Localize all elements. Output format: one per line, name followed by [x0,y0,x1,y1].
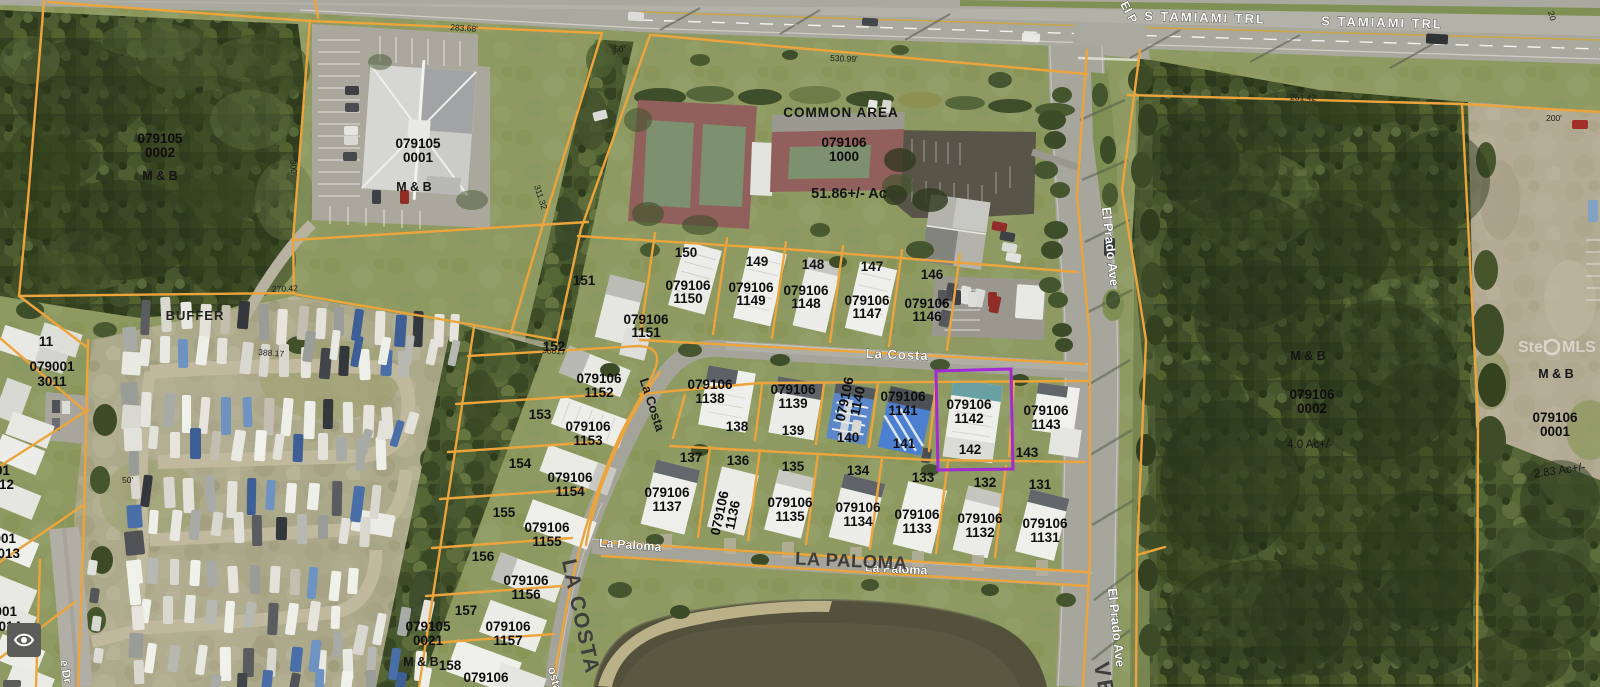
svg-text:530.99': 530.99' [830,53,858,64]
svg-text:079106: 079106 [1023,403,1069,418]
svg-text:079105: 079105 [395,136,441,151]
svg-text:M & B: M & B [1290,349,1325,363]
svg-text:079106: 079106 [821,135,867,150]
svg-text:1150: 1150 [673,291,702,306]
svg-text:142: 142 [959,442,982,457]
svg-text:079106: 079106 [767,495,813,510]
svg-text:M & B: M & B [1538,367,1573,381]
svg-text:079106: 079106 [485,619,531,634]
svg-text:079106: 079106 [565,419,611,434]
svg-text:135: 135 [782,459,805,474]
svg-text:1153: 1153 [573,433,603,448]
svg-text:COMMON AREA: COMMON AREA [783,105,899,120]
svg-text:079105: 079105 [137,131,183,146]
svg-text:151: 151 [573,273,596,288]
svg-text:079106: 079106 [1532,410,1578,425]
svg-text:132: 132 [974,475,997,490]
svg-text:079106: 079106 [547,470,593,485]
svg-text:1151: 1151 [631,325,661,340]
svg-text:BUFFER: BUFFER [166,308,225,323]
svg-text:138: 138 [726,419,749,434]
svg-text:137: 137 [680,450,703,465]
svg-text:1135: 1135 [775,509,805,524]
svg-text:147: 147 [861,259,884,274]
svg-text:136: 136 [727,453,750,468]
svg-text:149: 149 [746,254,769,269]
svg-text:146: 146 [921,267,944,282]
svg-text:140: 140 [837,430,860,445]
svg-text:079106: 079106 [687,377,733,392]
svg-text:155: 155 [493,505,516,520]
svg-text:0001: 0001 [1540,424,1571,439]
svg-text:261.42': 261.42' [1290,92,1318,103]
svg-text:1141: 1141 [888,403,918,418]
svg-text:079106: 079106 [576,371,622,386]
svg-text:01: 01 [0,463,10,478]
svg-text:001: 001 [0,531,16,546]
svg-text:079001: 079001 [29,359,75,374]
svg-text:La Costa: La Costa [865,346,928,363]
svg-text:079106: 079106 [894,507,940,522]
svg-text:150: 150 [675,245,698,260]
svg-text:1147: 1147 [852,306,881,321]
svg-text:1138: 1138 [695,391,725,406]
svg-text:079106: 079106 [957,511,1003,526]
svg-text:141: 141 [893,436,916,451]
svg-text:0002: 0002 [145,145,175,160]
svg-text:1131: 1131 [1030,530,1060,545]
svg-text:283.68': 283.68' [450,22,479,34]
svg-text:079106: 079106 [946,397,992,412]
svg-text:079106: 079106 [644,485,690,500]
svg-text:079106: 079106 [770,382,816,397]
svg-text:079106: 079106 [1289,387,1335,402]
svg-text:270.42: 270.42 [272,283,299,294]
svg-text:148: 148 [802,257,825,272]
svg-text:1155: 1155 [532,534,562,549]
svg-text:134: 134 [847,463,870,478]
svg-text:156: 156 [472,549,495,564]
svg-text:MLS: MLS [1562,339,1596,356]
svg-text:1143: 1143 [1031,417,1061,432]
svg-text:200': 200' [1546,113,1562,123]
svg-text:0021: 0021 [413,633,444,648]
svg-text:12: 12 [0,477,14,492]
svg-text:079106: 079106 [1022,516,1068,531]
svg-text:M & B: M & B [403,655,438,669]
svg-text:3011: 3011 [37,374,67,389]
svg-text:153: 153 [529,407,552,422]
svg-text:M & B: M & B [142,169,177,183]
svg-text:38817: 38817 [542,345,567,357]
svg-text:1142: 1142 [954,411,983,426]
svg-text:S TAMIAMI TRL: S TAMIAMI TRL [1321,13,1443,31]
svg-text:079106: 079106 [835,500,881,515]
svg-text:079106: 079106 [880,389,926,404]
svg-text:157: 157 [455,603,478,618]
svg-text:1156: 1156 [511,587,541,602]
svg-text:001: 001 [0,604,17,619]
svg-text:11: 11 [39,334,54,349]
svg-text:1146: 1146 [912,309,942,324]
svg-text:388.17: 388.17 [258,347,285,359]
svg-text:158: 158 [439,658,462,673]
svg-text:50': 50' [614,44,625,54]
svg-text:143: 143 [1016,445,1039,460]
svg-text:131: 131 [1029,477,1052,492]
svg-text:1152: 1152 [584,385,613,400]
svg-text:0001: 0001 [403,150,434,165]
svg-text:079106: 079106 [524,520,570,535]
svg-text:1149: 1149 [736,293,765,308]
svg-text:Stel: Stel [1518,339,1547,356]
svg-text:133: 133 [912,470,935,485]
svg-text:1157: 1157 [493,633,522,648]
svg-text:4.0 Ac+/-: 4.0 Ac+/- [1287,439,1333,451]
svg-text:079106: 079106 [503,573,549,588]
svg-text:139: 139 [782,423,805,438]
svg-text:50': 50' [122,475,133,485]
svg-text:1133: 1133 [902,521,932,536]
svg-text:1137: 1137 [652,499,681,514]
svg-text:079105: 079105 [405,619,451,634]
svg-text:VE: VE [1089,660,1120,687]
svg-text:1000: 1000 [829,149,859,164]
svg-text:300': 300' [288,159,299,176]
svg-text:51.86+/- Ac: 51.86+/- Ac [811,186,887,202]
svg-text:M & B: M & B [396,180,431,194]
svg-text:154: 154 [509,456,532,471]
svg-text:0002: 0002 [1297,401,1327,416]
svg-text:1148: 1148 [791,296,821,311]
svg-text:S TAMIAMI TRL: S TAMIAMI TRL [1144,8,1266,26]
svg-text:1134: 1134 [843,514,873,529]
svg-text:013: 013 [0,546,20,561]
svg-text:1154: 1154 [555,484,585,499]
svg-text:1139: 1139 [778,396,807,411]
svg-text:079106: 079106 [463,670,509,685]
svg-text:1132: 1132 [965,525,994,540]
